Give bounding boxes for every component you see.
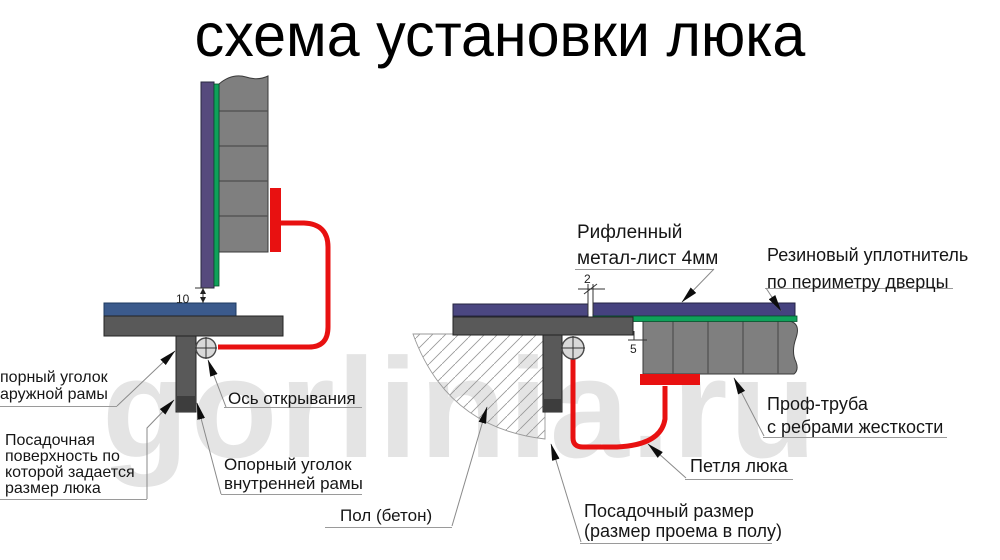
dim10-arrow-down <box>200 297 206 303</box>
label-seating-surface: Посадочная поверхность по которой задает… <box>5 433 135 497</box>
page-title: схема установки люка <box>15 0 985 72</box>
dim-10-text: 10 <box>176 292 189 306</box>
left-rubber-seal <box>214 84 219 286</box>
label-seating-size: Посадочный размер (размер проема в полу) <box>584 502 782 541</box>
door-ribbed-sheet <box>593 303 795 316</box>
label-line: размер люка <box>5 481 135 497</box>
dim-5-text: 5 <box>630 342 637 356</box>
label-line: аружной рамы <box>0 387 108 404</box>
label-line: внутренней рамы <box>224 475 363 494</box>
left-metal-sheet <box>201 82 214 288</box>
label-line: по периметру дверцы <box>767 269 968 296</box>
dim10-arrow-up <box>200 288 206 294</box>
left-dim10-marks <box>195 288 211 303</box>
label-opening-axis: Ось открывания <box>228 389 356 409</box>
label-line: метал-лист 4мм <box>577 246 718 272</box>
left-frame-plate <box>104 303 236 316</box>
installation-scheme-canvas: gorlinia.ru <box>0 0 1000 560</box>
left-tube-rib-lines <box>219 111 268 216</box>
left-profile-tube <box>219 76 268 252</box>
dim2-marks <box>578 284 605 314</box>
label-concrete-floor: Пол (бетон) <box>340 506 432 526</box>
label-line: (размер проема в полу) <box>584 522 782 542</box>
label-line: которой задается <box>5 465 135 481</box>
label-ribbed-sheet: Рифленный метал-лист 4мм <box>577 220 718 272</box>
label-outer-frame-angle: порный уголок аружной рамы <box>0 370 108 403</box>
door-rubber-seal <box>593 316 797 322</box>
label-line: с ребрами жесткости <box>767 416 943 439</box>
label-line: порный уголок <box>0 370 108 387</box>
label-profile-tube: Проф-труба с ребрами жесткости <box>767 393 943 439</box>
label-line: Посадочный размер <box>584 502 782 522</box>
label-hatch-hinge: Петля люка <box>690 456 788 477</box>
outer-frame-sheet <box>453 304 588 316</box>
dim-2-text: 2 <box>584 272 591 286</box>
label-line: Резиновый уплотнитель <box>767 242 968 269</box>
label-line: Опорный уголок <box>224 456 363 475</box>
label-line: поверхность по <box>5 449 135 465</box>
left-hinge-bracket <box>270 188 281 252</box>
label-line: Посадочная <box>5 433 135 449</box>
label-line: Проф-труба <box>767 393 943 416</box>
label-line: Рифленный <box>577 220 718 246</box>
label-inner-frame-angle: Опорный уголок внутренней рамы <box>224 456 363 493</box>
label-rubber-seal: Резиновый уплотнитель по периметру дверц… <box>767 242 968 296</box>
